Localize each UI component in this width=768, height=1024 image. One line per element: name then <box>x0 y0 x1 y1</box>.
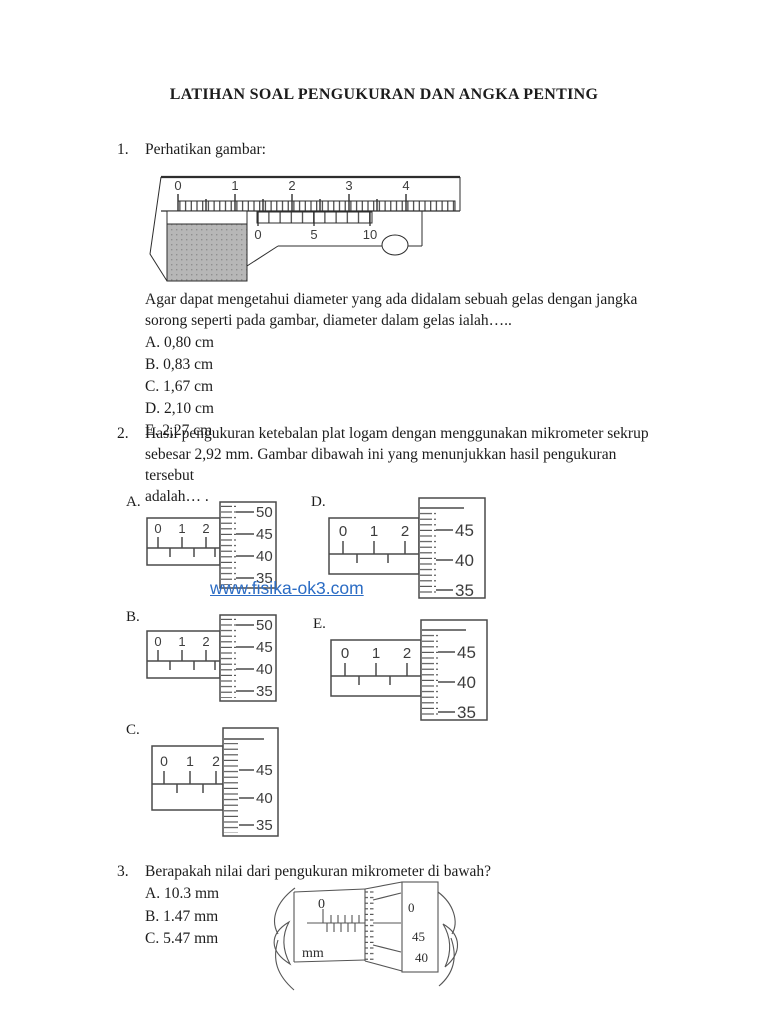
svg-text:0: 0 <box>174 178 181 193</box>
svg-text:10: 10 <box>363 227 377 242</box>
svg-text:45: 45 <box>457 643 476 662</box>
diagram-d-thimble-scale: 45 40 35 <box>455 521 474 600</box>
svg-text:50: 50 <box>256 617 273 634</box>
diagram-e-label: E. <box>313 614 326 635</box>
diagram-d-label: D. <box>311 492 326 513</box>
svg-text:2: 2 <box>212 753 220 769</box>
q2-text-line2: sebesar 2,92 mm. Gambar dibawah ini yang… <box>145 444 616 465</box>
micrometer-option-c-figure: 0 1 2 45 40 35 <box>150 726 282 838</box>
q3-number: 3. <box>117 861 129 882</box>
svg-text:0: 0 <box>154 634 161 649</box>
svg-text:45: 45 <box>455 521 474 540</box>
svg-text:35: 35 <box>256 683 273 700</box>
q1-text-line2: sorong seperti pada gambar, diameter dal… <box>145 310 512 331</box>
svg-text:1: 1 <box>178 634 185 649</box>
vernier-caliper-figure: 0 1 2 3 4 0 5 10 <box>145 168 485 292</box>
svg-text:1: 1 <box>370 523 378 540</box>
diagram-b-label: B. <box>126 607 140 628</box>
svg-text:5: 5 <box>310 227 317 242</box>
q2-text-line1: Hasil pengukuran ketebalan plat logam de… <box>145 423 649 444</box>
micrometer-option-e-figure: 0 1 2 45 40 35 <box>328 618 490 722</box>
svg-text:35: 35 <box>455 581 474 600</box>
q3-option-b: B. 1.47 mm <box>145 906 218 927</box>
caliper-vernier-labels: 0 5 10 <box>254 227 377 242</box>
q1-option-a: A. 0,80 cm <box>145 332 214 353</box>
page-title: LATIHAN SOAL PENGUKURAN DAN ANGKA PENTIN… <box>0 86 768 104</box>
svg-text:45: 45 <box>256 639 273 656</box>
q2-text-line3: tersebut <box>145 465 194 486</box>
q1-prompt: Perhatikan gambar: <box>145 139 266 160</box>
svg-text:0: 0 <box>339 523 347 540</box>
svg-text:4: 4 <box>402 178 409 193</box>
svg-text:40: 40 <box>415 950 428 965</box>
frame-anvil-left <box>274 922 290 964</box>
svg-text:35: 35 <box>457 703 476 722</box>
svg-text:2: 2 <box>401 523 409 540</box>
svg-text:0: 0 <box>318 897 325 912</box>
svg-text:1: 1 <box>186 753 194 769</box>
svg-text:2: 2 <box>403 645 411 662</box>
svg-text:40: 40 <box>256 548 273 565</box>
svg-text:40: 40 <box>457 673 476 692</box>
micrometer-option-a-figure: 0 1 2 50 45 40 35 <box>144 500 279 590</box>
q1-option-c: C. 1,67 cm <box>145 376 213 397</box>
svg-text:40: 40 <box>256 790 273 807</box>
q3-option-a: A. 10.3 mm <box>145 883 219 904</box>
frame-anvil-right <box>443 924 458 967</box>
svg-text:1: 1 <box>178 521 185 536</box>
svg-text:2: 2 <box>202 521 209 536</box>
q2-number: 2. <box>117 423 129 444</box>
diagram-c-thimble-scale: 45 40 35 <box>256 762 273 834</box>
svg-text:45: 45 <box>256 526 273 543</box>
main-scale-minor-ticks <box>178 201 455 211</box>
watermark-link[interactable]: www.fisika-ok3.com <box>210 578 364 599</box>
svg-text:0: 0 <box>341 645 349 662</box>
micrometer-option-b-figure: 0 1 2 50 45 40 35 <box>144 613 279 703</box>
thumb-wheel <box>382 235 408 255</box>
diagram-a-label: A. <box>126 492 141 513</box>
diagram-c-label: C. <box>126 720 140 741</box>
svg-text:1: 1 <box>231 178 238 193</box>
q1-option-b: B. 0,83 cm <box>145 354 213 375</box>
caliper-body <box>150 177 460 281</box>
svg-text:40: 40 <box>455 551 474 570</box>
svg-text:1: 1 <box>372 645 380 662</box>
svg-text:3: 3 <box>345 178 352 193</box>
q3-prompt: Berapakah nilai dari pengukuran mikromet… <box>145 861 491 882</box>
svg-text:0: 0 <box>408 900 415 915</box>
svg-text:2: 2 <box>202 634 209 649</box>
caliper-main-scale-labels: 0 1 2 3 4 <box>174 178 409 193</box>
svg-text:35: 35 <box>256 817 273 834</box>
svg-text:mm: mm <box>302 946 324 961</box>
svg-text:45: 45 <box>256 762 273 779</box>
q3-option-c: C. 5.47 mm <box>145 928 218 949</box>
svg-text:50: 50 <box>256 504 273 521</box>
micrometer-question3-figure: 0 mm 0 45 40 <box>262 880 467 1006</box>
thimble-fine-ticks <box>366 890 374 960</box>
svg-text:40: 40 <box>256 661 273 678</box>
svg-text:2: 2 <box>288 178 295 193</box>
q1-option-d: D. 2,10 cm <box>145 398 214 419</box>
worksheet-page: LATIHAN SOAL PENGUKURAN DAN ANGKA PENTIN… <box>0 0 768 1024</box>
svg-text:0: 0 <box>160 753 168 769</box>
diagram-e-thimble-scale: 45 40 35 <box>457 643 476 722</box>
svg-text:0: 0 <box>154 521 161 536</box>
q1-number: 1. <box>117 139 129 160</box>
q1-text-line1: Agar dapat mengetahui diameter yang ada … <box>145 289 637 310</box>
svg-text:45: 45 <box>412 929 425 944</box>
svg-text:0: 0 <box>254 227 261 242</box>
